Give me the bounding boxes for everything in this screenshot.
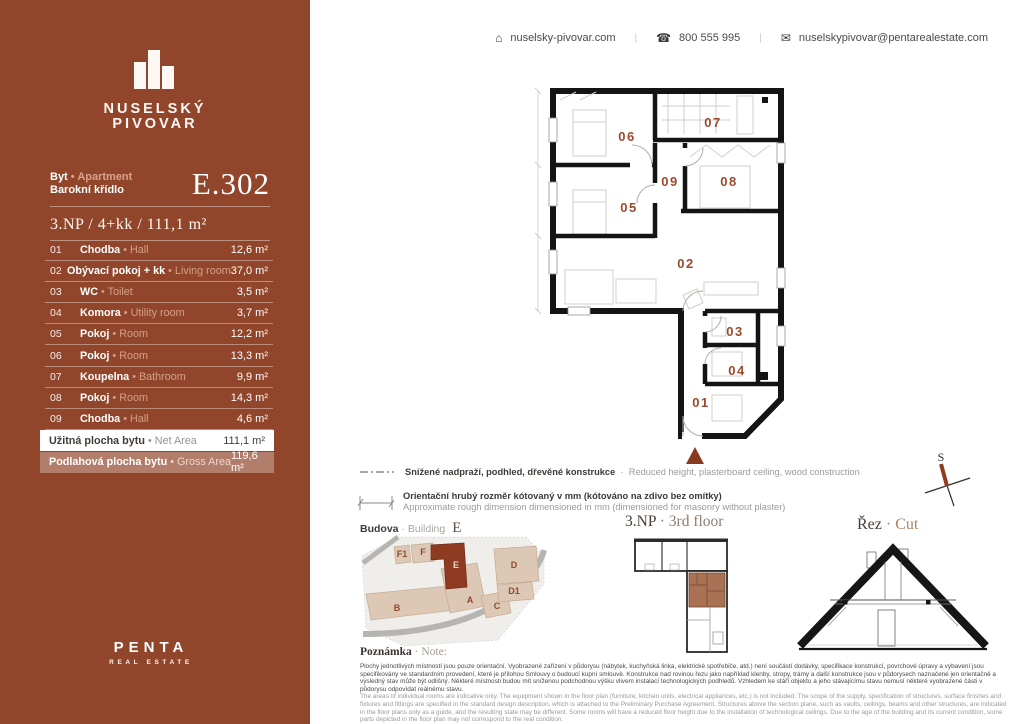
room-name: Pokoj • Room bbox=[80, 350, 231, 362]
room-label-02: 02 bbox=[677, 256, 694, 271]
table-row: 03WC • Toilet3,5 m² bbox=[45, 282, 273, 303]
room-number: 09 bbox=[50, 413, 80, 425]
roof-section bbox=[799, 549, 987, 649]
room-label-07: 07 bbox=[704, 115, 721, 130]
contact-bar: ⌂ nuselsky-pivovar.com | ☎ 800 555 995 |… bbox=[495, 31, 988, 45]
legend-reduced-height: Snížené nadpraží, podhled, dřevěné konst… bbox=[360, 467, 860, 477]
room-area: 13,3 m² bbox=[231, 350, 268, 362]
email-link[interactable]: nuselskypivovar@pentarealestate.com bbox=[799, 32, 988, 44]
room-name: Pokoj • Room bbox=[80, 392, 231, 404]
room-area: 4,6 m² bbox=[237, 413, 268, 425]
room-table: 01Chodba • Hall12,6 m² 02Obývací pokoj +… bbox=[45, 240, 273, 430]
separator: | bbox=[759, 33, 762, 44]
building-label-f: F bbox=[420, 547, 426, 557]
room-label-04: 04 bbox=[728, 363, 745, 378]
room-number: 01 bbox=[50, 244, 80, 256]
unit-wing: Barokní křídlo bbox=[50, 184, 132, 197]
room-area: 3,7 m² bbox=[237, 307, 268, 319]
building-label-e: E bbox=[453, 560, 459, 570]
note-body: Plochy jednotlivých místností jsou pouze… bbox=[360, 663, 1010, 724]
floor-plan-drawing: 06 07 05 09 08 02 03 04 01 bbox=[530, 80, 800, 475]
phone-icon: ☎ bbox=[656, 31, 671, 45]
floor-locator-plan bbox=[630, 535, 730, 657]
site-plan: F1 F E D D1 A C B bbox=[358, 536, 548, 648]
mail-icon: ✉ bbox=[781, 31, 791, 45]
room-name: Obývací pokoj + kk • Living room bbox=[67, 265, 231, 277]
gross-area-label: Podlahová plocha bytu • Gross Area bbox=[49, 456, 231, 468]
table-row: 02Obývací pokoj + kk • Living room37,0 m… bbox=[45, 261, 273, 282]
building-label-b: B bbox=[394, 603, 401, 613]
penta-wordmark: PENTA bbox=[0, 639, 302, 656]
room-area: 3,5 m² bbox=[237, 286, 268, 298]
section-cut-drawing: S bbox=[790, 440, 995, 655]
room-name: Chodba • Hall bbox=[80, 413, 237, 425]
room-name: Komora • Utility room bbox=[80, 307, 237, 319]
penta-subtitle: REAL ESTATE bbox=[0, 659, 302, 666]
table-row: 06Pokoj • Room13,3 m² bbox=[45, 345, 273, 366]
room-number: 06 bbox=[50, 350, 80, 362]
brand-logo: NUSELSKÝ PIVOVAR bbox=[0, 50, 310, 132]
room-label-01: 01 bbox=[692, 395, 709, 410]
room-name: Pokoj • Room bbox=[80, 328, 231, 340]
room-name: Koupelna • Bathroom bbox=[80, 371, 237, 383]
room-name: Chodba • Hall bbox=[80, 244, 231, 256]
compass-icon: S bbox=[925, 450, 970, 506]
note-title: Poznámka · Note: bbox=[360, 646, 447, 658]
building-label-d: D bbox=[511, 560, 518, 570]
sidebar: NUSELSKÝ PIVOVAR Byt • Apartment Barokní… bbox=[0, 0, 310, 724]
website-link[interactable]: nuselsky-pivovar.com bbox=[510, 32, 615, 44]
phone-number[interactable]: 800 555 995 bbox=[679, 32, 740, 44]
net-area-row: Užitná plocha bytu • Net Area 111,1 m² bbox=[40, 430, 274, 451]
building-value: E bbox=[452, 520, 461, 536]
apartment-sheet-page: NUSELSKÝ PIVOVAR Byt • Apartment Barokní… bbox=[0, 0, 1024, 724]
table-row: 05Pokoj • Room12,2 m² bbox=[45, 324, 273, 345]
table-row: 04Komora • Utility room3,7 m² bbox=[45, 303, 273, 324]
unit-header: Byt • Apartment Barokní křídlo E.302 bbox=[50, 171, 270, 199]
table-row: 07Koupelna • Bathroom9,9 m² bbox=[45, 367, 273, 388]
dimension-line-icon bbox=[358, 493, 394, 513]
note-text-czech: Plochy jednotlivých místností jsou pouze… bbox=[360, 663, 1010, 693]
dashdot-line-icon bbox=[360, 469, 394, 475]
room-number: 08 bbox=[50, 392, 80, 404]
room-area: 9,9 m² bbox=[237, 371, 268, 383]
note-text-english: The areas of individual rooms are indica… bbox=[360, 693, 1010, 723]
room-area: 37,0 m² bbox=[231, 265, 268, 277]
table-row: 01Chodba • Hall12,6 m² bbox=[45, 240, 273, 261]
unit-spec: 3.NP / 4+kk / 111,1 m² bbox=[50, 216, 207, 234]
compass-north-label: S bbox=[938, 450, 945, 464]
room-number: 03 bbox=[50, 286, 80, 298]
separator: | bbox=[634, 33, 637, 44]
building-label-a: A bbox=[467, 595, 474, 605]
divider bbox=[50, 206, 270, 207]
brewery-bars-icon bbox=[133, 50, 177, 90]
gross-area-value: 119,6 m² bbox=[231, 450, 265, 474]
penta-logo: PENTA REAL ESTATE bbox=[0, 639, 302, 666]
room-number: 05 bbox=[50, 328, 80, 340]
brand-name-line1: NUSELSKÝ bbox=[0, 102, 310, 117]
room-area: 12,2 m² bbox=[231, 328, 268, 340]
unit-type: Byt • Apartment bbox=[50, 171, 132, 184]
entrance-arrow bbox=[686, 447, 704, 464]
building-label-f1: F1 bbox=[397, 549, 408, 559]
building-label-d1: D1 bbox=[508, 586, 520, 596]
table-row: 09Chodba • Hall4,6 m² bbox=[45, 409, 273, 430]
room-number: 04 bbox=[50, 307, 80, 319]
room-number: 02 bbox=[50, 265, 67, 277]
building-label-c: C bbox=[494, 601, 501, 611]
home-icon: ⌂ bbox=[495, 31, 502, 45]
net-area-label: Užitná plocha bytu • Net Area bbox=[49, 435, 223, 447]
net-area-value: 111,1 m² bbox=[223, 435, 265, 447]
table-row: 08Pokoj • Room14,3 m² bbox=[45, 388, 273, 409]
gross-area-row: Podlahová plocha bytu • Gross Area 119,6… bbox=[40, 452, 274, 473]
room-label-08: 08 bbox=[720, 174, 737, 189]
brand-name-line2: PIVOVAR bbox=[0, 117, 310, 132]
room-label-06: 06 bbox=[618, 129, 635, 144]
building-caption: Budova · BuildingE bbox=[360, 520, 461, 537]
floor-caption: 3.NP · 3rd floor bbox=[625, 513, 723, 531]
legend-dimension: Orientační hrubý rozměr kótovaný v mm (k… bbox=[358, 491, 785, 513]
room-label-09: 09 bbox=[661, 174, 678, 189]
room-name: WC • Toilet bbox=[80, 286, 237, 298]
room-area: 14,3 m² bbox=[231, 392, 268, 404]
room-number: 07 bbox=[50, 371, 80, 383]
room-area: 12,6 m² bbox=[231, 244, 268, 256]
room-label-03: 03 bbox=[726, 324, 743, 339]
room-label-05: 05 bbox=[620, 200, 637, 215]
unit-code: E.302 bbox=[192, 169, 270, 199]
